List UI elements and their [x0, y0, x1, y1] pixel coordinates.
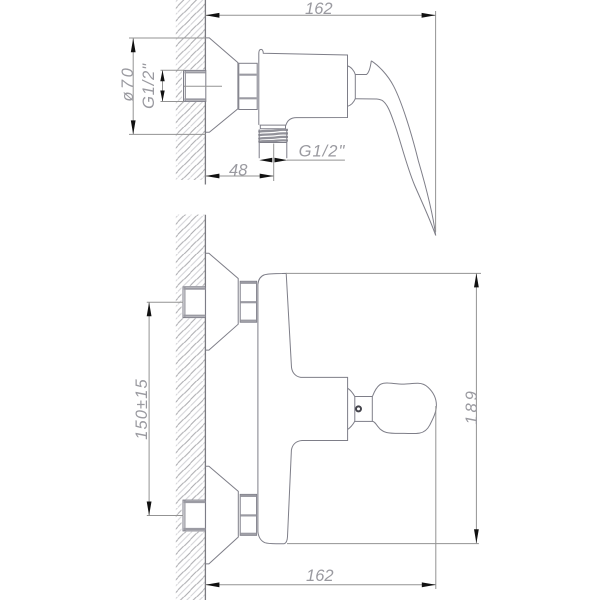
svg-text:G1/2": G1/2"	[299, 142, 346, 160]
svg-text:162: 162	[306, 567, 334, 585]
svg-text:G1/2": G1/2"	[140, 63, 158, 109]
svg-text:189: 189	[463, 388, 481, 425]
svg-text:ø70: ø70	[119, 66, 137, 102]
svg-text:162: 162	[305, 0, 333, 18]
svg-text:48: 48	[229, 161, 248, 179]
svg-text:150±15: 150±15	[133, 378, 151, 440]
